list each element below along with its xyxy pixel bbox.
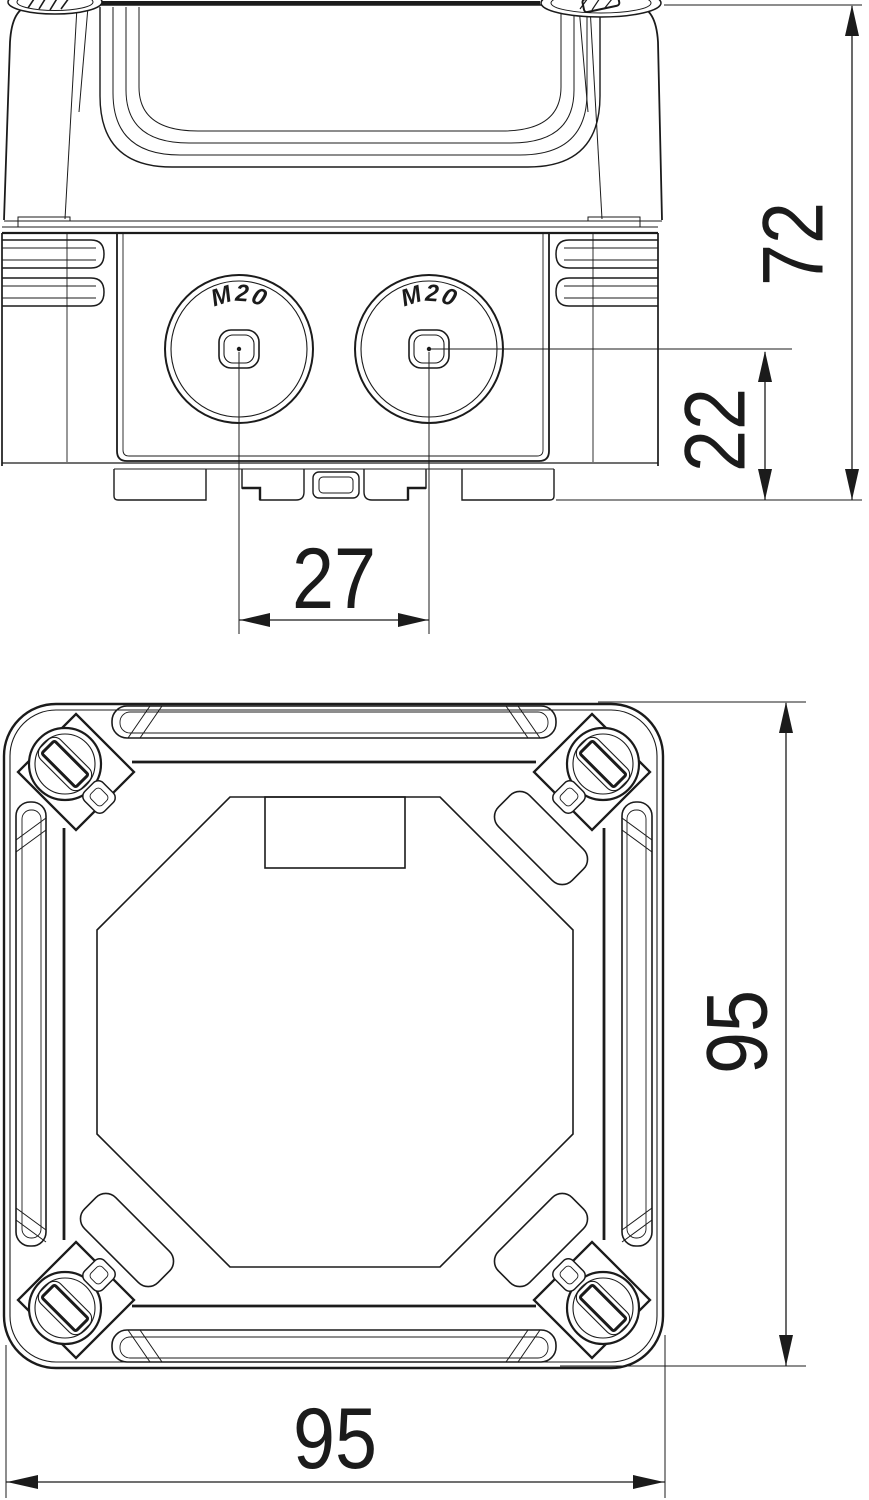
base-feet (2, 463, 658, 500)
dimension-95-horizontal-label: 95 (293, 1391, 377, 1487)
technical-drawing-page: M20 M20 (0, 0, 869, 1500)
lid-post-line (65, 7, 77, 219)
dimension-22-label: 22 (668, 388, 764, 472)
m20-knockout-left-label: M20 (208, 280, 272, 313)
dimension-72-label: 72 (746, 202, 842, 286)
plan-view (4, 704, 663, 1368)
lid-recess-contour (126, 7, 574, 143)
dimension-27-label: 27 (292, 531, 376, 627)
dimension-22: 22 (429, 349, 792, 500)
lid-screw-head-right (541, 0, 661, 17)
lid-left-edge (4, 6, 30, 220)
svg-text:M20: M20 (208, 280, 272, 313)
lid-recess-contour (139, 7, 561, 131)
lid-recess-contour (113, 7, 587, 155)
seam-step-right (588, 217, 640, 227)
side-view: M20 M20 (2, 0, 662, 500)
base-inner-wall-lines (67, 234, 593, 462)
front-panel-inner (123, 234, 543, 456)
svg-text:M20: M20 (398, 280, 462, 313)
m20-knockout-right-label: M20 (398, 280, 462, 313)
dimension-95-vertical-label: 95 (690, 990, 786, 1074)
seam-step-left (18, 217, 70, 227)
lid-post-line (79, 7, 88, 112)
vent-slots-right (556, 240, 658, 306)
front-panel-outline (117, 234, 549, 461)
lid-right-edge (637, 6, 662, 220)
junction-box-dimension-drawing: M20 M20 (0, 0, 869, 1500)
vent-slots-left (2, 240, 104, 306)
